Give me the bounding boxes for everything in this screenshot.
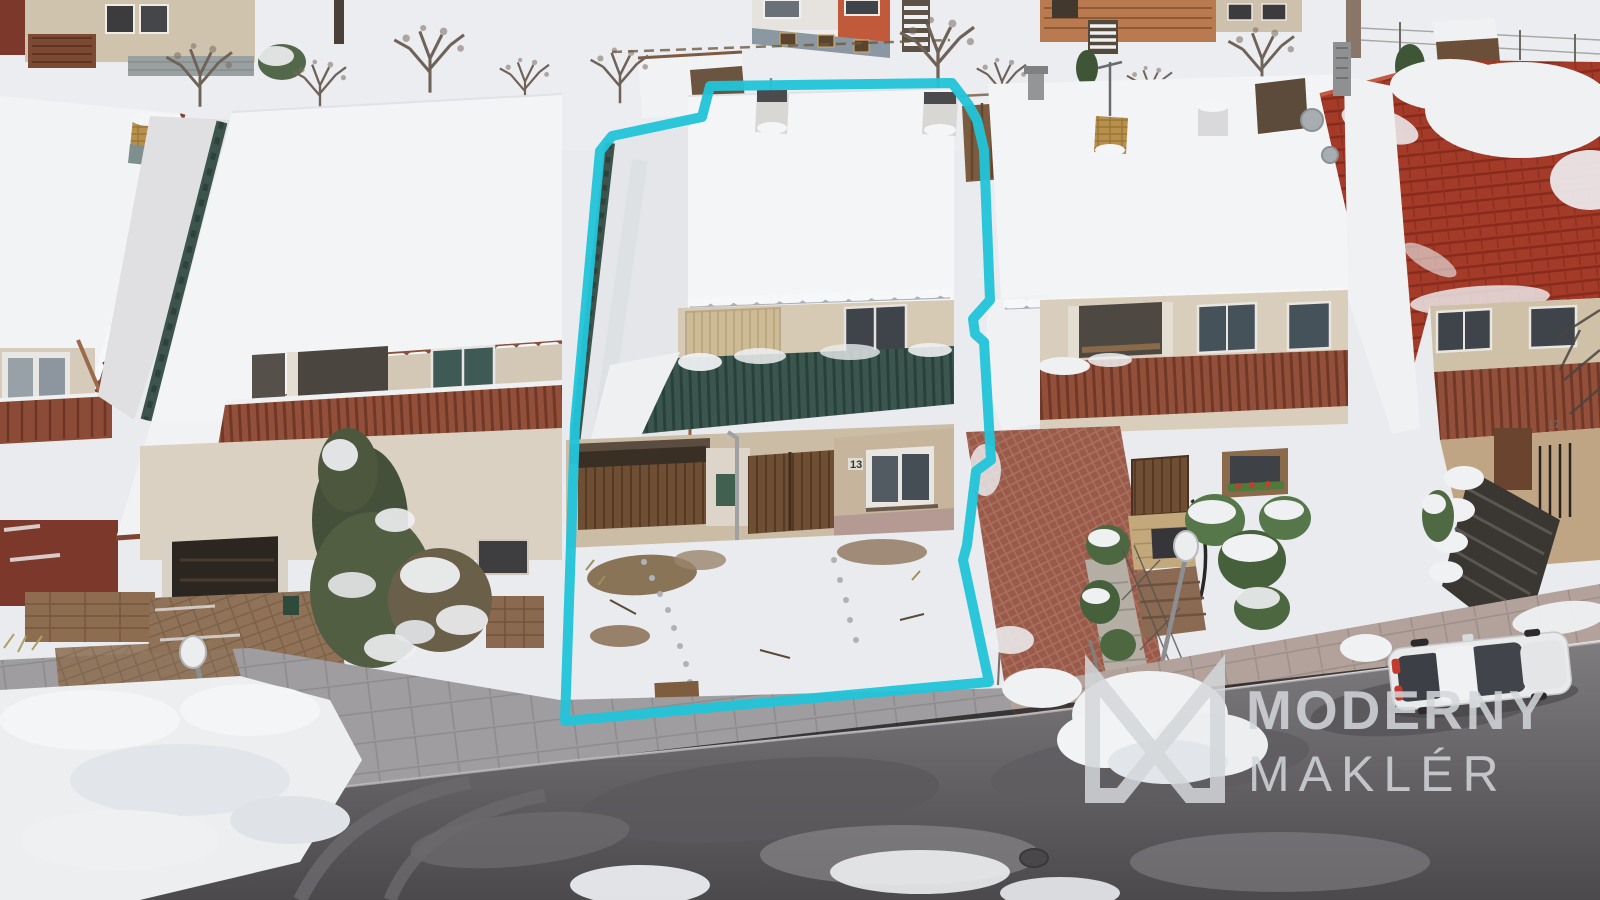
watermark-brand-subtitle: MAKLÉR — [1248, 746, 1508, 802]
satellite-dish-icon — [1301, 109, 1323, 131]
car-mirror — [1462, 634, 1474, 642]
snowy-bush — [388, 548, 492, 652]
chimney-icon — [922, 92, 958, 136]
house-number-13: 13 — [850, 459, 862, 471]
manhole-cover — [1020, 849, 1048, 867]
listing-photo: 13 — [0, 0, 1600, 900]
subject-house: 13 — [565, 78, 1004, 721]
satellite-dish-icon — [1322, 147, 1338, 163]
house-number-17: 17 — [1548, 419, 1560, 431]
car-taillight-icon — [1391, 658, 1401, 674]
aerial-scene: 13 — [0, 0, 1600, 900]
watermark-brand-name: MODERNY — [1246, 679, 1548, 741]
